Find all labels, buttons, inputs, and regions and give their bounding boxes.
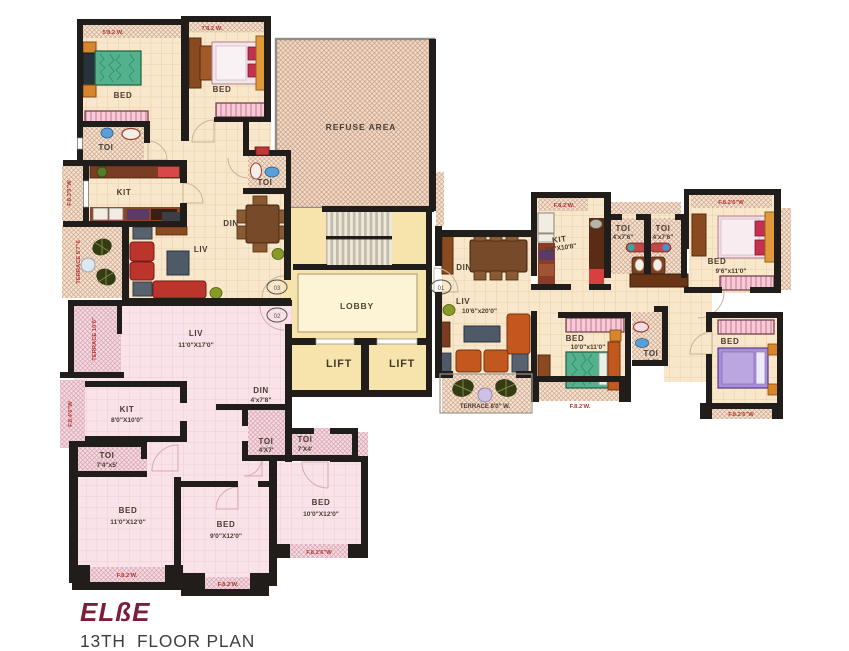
svg-text:TOI: TOI	[656, 224, 671, 233]
svg-text:BED: BED	[217, 520, 236, 529]
svg-text:TOI: TOI	[259, 437, 274, 446]
svg-text:TOI: TOI	[616, 224, 631, 233]
svg-text:BED: BED	[708, 257, 727, 266]
svg-text:F.8.2'6"W: F.8.2'6"W	[718, 200, 744, 206]
svg-text:DIN: DIN	[253, 386, 269, 395]
svg-text:TERRACE 5'7"6: TERRACE 5'7"6	[76, 240, 82, 284]
svg-text:03: 03	[274, 286, 281, 292]
svg-text:01: 01	[438, 286, 445, 292]
svg-text:8'0"X10'0": 8'0"X10'0"	[111, 417, 143, 424]
svg-text:F.8.2'W.: F.8.2'W.	[117, 573, 138, 579]
svg-text:F.8.2'6"W: F.8.2'6"W	[306, 550, 332, 556]
svg-text:10'6"x20'0": 10'6"x20'0"	[462, 308, 497, 315]
svg-text:KIT: KIT	[120, 405, 135, 414]
svg-text:F.8.4'6"W: F.8.4'6"W	[68, 401, 74, 427]
svg-text:DIN: DIN	[223, 219, 239, 228]
svg-text:LIFT: LIFT	[389, 358, 415, 370]
svg-text:11'0"X17'0": 11'0"X17'0"	[178, 342, 213, 349]
svg-text:LIV: LIV	[189, 329, 203, 338]
svg-text:LIFT: LIFT	[326, 358, 352, 370]
svg-text:LOBBY: LOBBY	[340, 301, 374, 311]
svg-text:BED: BED	[213, 85, 232, 94]
svg-text:F.8.2'W.: F.8.2'W.	[554, 203, 575, 209]
svg-text:TERRACE 8'0" W.: TERRACE 8'0" W.	[460, 404, 511, 410]
svg-text:F.8.2'6"W: F.8.2'6"W	[728, 412, 754, 418]
svg-text:02: 02	[274, 314, 281, 320]
svg-text:7'4"x5': 7'4"x5'	[97, 462, 118, 469]
svg-text:TOI: TOI	[258, 178, 273, 187]
svg-text:BED: BED	[312, 498, 331, 507]
svg-text:BED: BED	[114, 91, 133, 100]
svg-text:TOI: TOI	[644, 349, 659, 358]
svg-text:7'X4': 7'X4'	[298, 446, 313, 453]
svg-text:REFUSE AREA: REFUSE AREA	[326, 122, 397, 132]
svg-text:13TH FLOOR PLAN: 13TH FLOOR PLAN	[80, 631, 255, 651]
svg-text:TERRACE 10'6": TERRACE 10'6"	[92, 317, 98, 361]
svg-text:F.8.2'W.: F.8.2'W.	[218, 582, 239, 588]
svg-text:TOI: TOI	[298, 435, 313, 444]
svg-text:LIV: LIV	[194, 245, 208, 254]
svg-text:LIV: LIV	[456, 297, 470, 306]
svg-text:4'x7'8": 4'x7'8"	[251, 397, 272, 404]
svg-text:11'0"X12'0": 11'0"X12'0"	[110, 519, 145, 526]
svg-text:F.8.3'5"W: F.8.3'5"W	[67, 180, 73, 206]
svg-text:BED: BED	[119, 506, 138, 515]
svg-text:4'x7'6": 4'x7'6"	[653, 234, 674, 241]
svg-text:DIN: DIN	[456, 263, 472, 272]
svg-text:BED: BED	[566, 334, 585, 343]
svg-text:TOI: TOI	[99, 143, 114, 152]
svg-text:4'x7'6": 4'x7'6"	[613, 234, 634, 241]
svg-text:9'0"X12'0": 9'0"X12'0"	[210, 533, 242, 540]
svg-text:BED: BED	[721, 337, 740, 346]
svg-text:9'6"x11'0": 9'6"x11'0"	[715, 268, 746, 275]
svg-text:F.8.2'W.: F.8.2'W.	[570, 404, 591, 410]
svg-text:5'8.2 W.: 5'8.2 W.	[102, 30, 123, 36]
svg-text:4'X7': 4'X7'	[259, 447, 274, 454]
svg-text:10'0"X12'0": 10'0"X12'0"	[303, 511, 339, 518]
svg-text:10'0"x11'0": 10'0"x11'0"	[571, 344, 606, 351]
svg-text:ELßE: ELßE	[80, 597, 150, 627]
svg-text:TOI: TOI	[100, 451, 115, 460]
svg-text:KIT: KIT	[117, 188, 132, 197]
svg-text:7'8.2 W.: 7'8.2 W.	[201, 26, 222, 32]
